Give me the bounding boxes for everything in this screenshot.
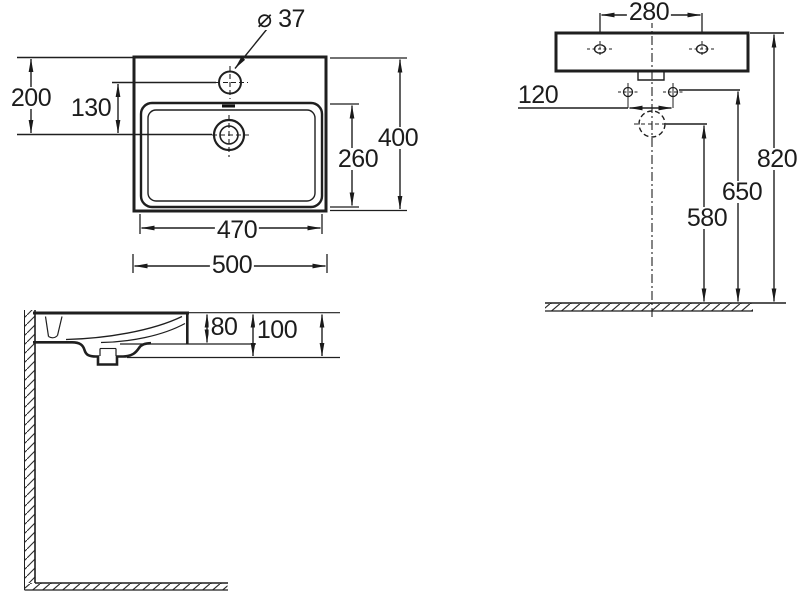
trap-circle (634, 111, 667, 137)
washbasin-technical-drawing: ⌀ 37 200 130 260 400 470 500 280 120 820… (0, 0, 800, 596)
front-view (518, 13, 786, 320)
label-fixture-spacing: 120 (516, 84, 560, 106)
label-rim-to-underside: 100 (255, 319, 299, 341)
label-rim-height: 820 (755, 148, 799, 170)
side-section-view (25, 310, 341, 590)
basin-section-profile (33, 313, 189, 365)
drawing-linework (0, 0, 800, 596)
label-overall-depth: 400 (376, 127, 420, 149)
label-drain-height: 580 (685, 207, 729, 229)
label-rim-to-bowl: 80 (209, 316, 240, 338)
front-floor (545, 303, 786, 311)
wall-bolt-left (618, 83, 638, 108)
floor-section (25, 583, 229, 590)
wall-bolt-right (663, 83, 683, 108)
overflow-slot (222, 105, 235, 108)
label-overall-width: 500 (210, 254, 254, 276)
label-bolt-height: 650 (720, 181, 764, 203)
label-bowl-width: 470 (215, 219, 259, 241)
label-faucet-diameter: ⌀ 37 (255, 8, 307, 30)
plan-bowl-outer-edge (141, 103, 322, 207)
label-rim-to-drain: 200 (9, 87, 53, 109)
label-faucet-to-drain: 130 (69, 97, 113, 119)
label-bowl-depth: 260 (336, 148, 380, 170)
label-hole-spacing: 280 (627, 1, 671, 23)
wall-section (25, 310, 36, 590)
